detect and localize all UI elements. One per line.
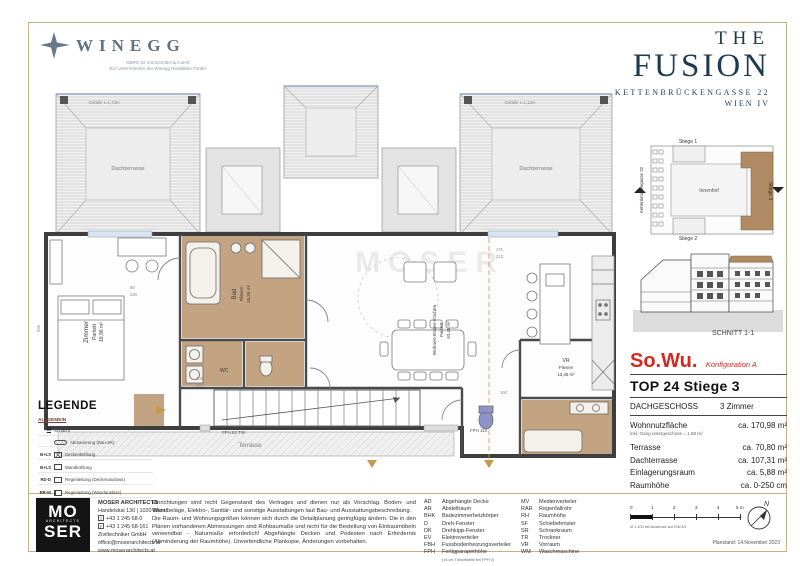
disclaimer-paragraph-2: Die Raum- und Wohnungsgrößen können sich… [152,516,416,546]
abbrev-row: VRVorraum [521,542,621,549]
street-label: Kettenbrückengasse 22 [639,166,644,213]
abbrev-row: FBHFussbodenheizungsverteiler [424,542,520,549]
metric-row: Dachterrasse ca. 107,31 m² [630,456,787,465]
legend-item: M Schacht [38,427,153,436]
abbrev-row: ADAbgehängte Decke [424,499,520,506]
phone-icon: T [98,515,104,521]
winegg-parent-company: Ein Unternehmen der Winegg Realitäten Gm… [58,66,258,72]
metric-label: Wohnnutzfläche [630,421,687,430]
metric-label: Raumhöhe [630,481,669,490]
disclaimer-paragraph-1: Einrichtungen sind nicht Gegenstand des … [152,500,416,515]
slope-label: Gefälle t=1,12m [504,100,535,105]
abbrev-row: WMWaschmaschine [521,549,621,556]
unit-floor: DACHGESCHOSS [630,402,720,411]
legend-symbol: RD-D [38,477,51,482]
north-arrow-icon: N [744,498,776,532]
ground [633,310,783,332]
abbrev-row: MVMedienverteiler [521,499,621,506]
hatched-oval-icon [54,440,67,445]
fph-note: (±5 cm Türschwelle bei FPH 0) [424,557,520,564]
room-label: Parkett [439,322,444,337]
room-label: 13,45 m² [557,372,575,377]
unit-type: So.Wu. [630,350,697,372]
project-title-the: THE [570,28,770,50]
abbrev-row: BHKBadezimmerheizkörper [424,513,520,520]
winegg-star-icon [40,32,70,60]
room-label: Fliesen [239,286,244,301]
metric-value: ca. 0-250 cm [741,481,787,490]
winegg-subtitle: KBRG 22 ImmoGmbH & CoKG Ein Unternehmen … [58,60,258,72]
unit-info-panel: So.Wu. Konfiguration A TOP 24 Stiege 3 D… [630,350,787,490]
dim-label: 150 [500,390,508,395]
unit-rooms: 3 Zimmer [720,402,754,411]
plan-date: Planstand: 14.November 2023 [640,540,780,546]
section-label: SCHNITT 1-1 [712,330,754,337]
room-label: Fliesen [559,365,574,370]
legend-label: Wandkühlung [65,465,92,470]
roof-wing-right [460,94,612,234]
legend-item: B+LS Deckenkühlung [38,452,153,461]
legend-subtitle: ALLGEMEIN [38,418,153,423]
legend-symbol: B+LS [38,465,51,470]
abbrev-row: RARRegenfallrohr [521,506,621,513]
room-label: Zimmer [83,320,90,343]
scale-tick-label: 4 [717,505,720,510]
scale-tick-label: 5 m [736,505,744,510]
architect-watermark: MOSER [355,246,505,279]
unit-number: TOP 24 Stiege 3 [630,377,787,395]
room-label: 16,35 m² [246,284,251,303]
abbreviations-right: MVMedienverteiler RARRegenfallrohr RHRau… [521,499,621,557]
abbrev-row: RHRaumhöhe [521,513,621,520]
legend-label: Abmauerung (Bau-SK) [70,440,114,445]
stiege2-block [673,218,705,234]
abbrev-row: EVElektroverteiler [424,535,520,542]
abbrev-row: FPHFertigparapethöhe [424,549,520,556]
winegg-logo-block: WINEGG KBRG 22 ImmoGmbH & CoKG Ein Unter… [40,32,240,65]
abbrev-row: DKDrehkipp-Fenster [424,528,520,535]
legend-symbol: M [38,427,51,433]
legend-symbol: B+LS [38,452,51,457]
stiege3-label: Stiege 3 [767,182,773,201]
box-icon [54,490,62,496]
unit-metrics: Wohnnutzfläche ca. 170,98 m² inkl. Gang … [630,421,787,490]
abbreviations-left: ADAbgehängte Decke ARAbstellraum BHKBade… [424,499,520,564]
crossed-box-icon [54,452,62,458]
dim-label: 88 [130,285,135,290]
room-label: VR [562,358,569,364]
stiege2-label: Stiege 2 [679,236,698,242]
metric-value: ca. 170,98 m² [738,421,787,430]
winegg-name: WINEGG [76,36,186,56]
unit-floor-row: DACHGESCHOSS 3 Zimmer [630,400,787,413]
abbrev-row: DDreh-Fenster [424,521,520,528]
room-label: Terrasse [238,443,262,449]
scale-tick-label: 1 [651,505,654,510]
dim-label: 595 [36,324,41,332]
divider [630,397,787,398]
room-label: Wohnen-Essen-Kochen [432,304,438,355]
legend-label: Regenleitung (Wandauslass) [65,490,121,495]
scale-tick-label: 0 [630,505,633,510]
room-label: Parkett [92,323,98,339]
stiege1-block [673,146,705,162]
disclaimer-text: Einrichtungen sind nicht Gegenstand des … [152,500,416,547]
legend: LEGENDE ALLGEMEIN M Schacht Abmauerung (… [38,400,153,498]
dim-label: 104 [196,376,204,381]
section-roof-highlight [729,256,773,262]
slope-label: Gefälle t=1,72m [88,100,119,105]
metric-row: Raumhöhe ca. 0-250 cm [630,481,787,490]
abbrev-row: SFSchiebefenster [521,521,621,528]
metric-value: ca. 107,31 m² [738,456,787,465]
roof-wing-middle [206,86,456,232]
metric-label: Dachterrasse [630,456,678,465]
building-section [633,246,785,338]
room-label: Dachterrasse [111,166,144,172]
architect-logo: MO ARCHITECTS SER [36,498,90,552]
courtyard-label: Innenhof [699,188,719,194]
dim-label: 525 [196,383,204,388]
scale-filled-segment [630,515,652,519]
box-icon [54,477,62,483]
fph-label: FPH 83 TW [222,430,246,435]
room-label: 18,96 m² [99,322,105,342]
scale-tick-label: 3 [695,505,698,510]
metric-value: ca. 5,88 m² [747,468,787,477]
room-label: Dachterrasse [519,166,552,172]
legend-label: Schacht [54,428,70,433]
room-label: 63,45 m² [446,321,451,339]
dim-label: 171 [496,247,504,252]
divider [630,415,787,416]
legend-title: LEGENDE [38,400,153,412]
roof-wing-left [56,94,200,234]
divider [630,374,787,375]
legend-item: RD-D Regenleitung (Deckenauslass) [38,477,153,486]
metric-row: Terrasse ca. 70,80 m² [630,443,787,452]
fax-icon: F [98,523,104,529]
architect-logo-line1: MO [36,504,90,519]
site-plan: Stiege 1 Stiege 2 Stiege 3 Kettenbrücken… [633,138,785,242]
metric-row: Wohnnutzfläche ca. 170,98 m² [630,421,787,430]
metric-label: Einlagerungsraum [630,468,695,477]
abbrev-row: TRTrockner [521,535,621,542]
staircase [214,390,420,426]
abbrev-row: ARAbstellraum [424,506,520,513]
svg-text:N: N [764,501,770,508]
architect-website: www.moserarchitects.at [98,547,218,555]
room-label: Bad [232,289,238,300]
legend-item: RR-W Regenleitung (Wandauslass) [38,490,153,499]
legend-item: B+LS Wandkühlung [38,464,153,473]
legend-label: Regenleitung (Deckenauslass) [65,477,125,482]
abbrev-row: SRSchrankraum [521,528,621,535]
metric-label: Terrasse [630,443,661,452]
stiege1-label: Stiege 1 [679,139,698,145]
unit-type-row: So.Wu. Konfiguration A [630,350,787,372]
dim-label: 213 [496,254,504,259]
legend-item: Abmauerung (Bau-SK) [38,440,153,448]
box-icon [54,464,62,470]
metric-value: ca. 70,80 m² [743,443,787,452]
scale-note: M 1:100 bei Ausdruck auf DIN A4 [630,525,686,529]
scale-bar: 0 1 2 3 4 5 m M 1:100 bei Ausdruck auf D… [630,505,746,535]
architect-logo-line3: SER [36,524,90,539]
legend-symbol: RR-W [38,490,51,495]
legend-label: Deckenkühlung [65,452,95,457]
scale-tick-label: 2 [673,505,676,510]
unit-configuration: Konfiguration A [706,360,757,369]
fph-label: FPH 114 [470,428,488,433]
dim-label: 230 [130,292,138,297]
metric-row: Einlagerungsraum ca. 5,88 m² [630,468,787,477]
room-label: WC [220,368,229,374]
